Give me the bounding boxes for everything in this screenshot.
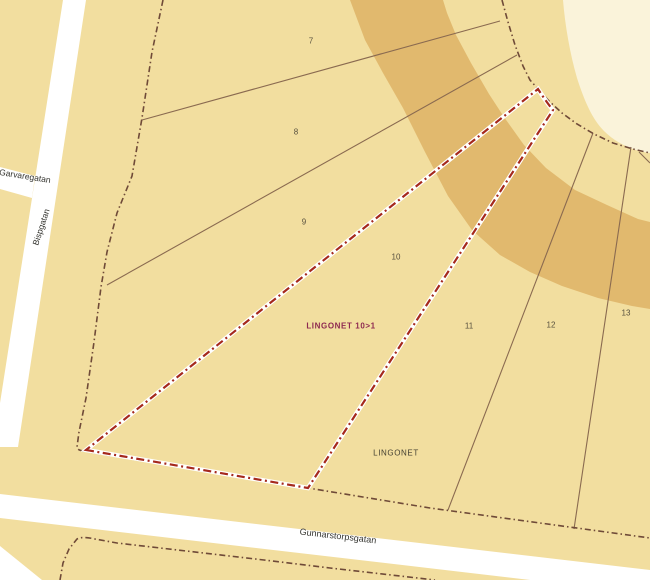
inner-circle-area <box>563 0 650 153</box>
block-boundaries <box>60 0 650 580</box>
map-canvas[interactable]: 7 8 9 10 11 12 13 LINGONET 10>1 LINGONET… <box>0 0 650 580</box>
street-bispgatan <box>0 0 86 447</box>
street-gunnarstorpsgatan <box>0 494 650 580</box>
street-garvaregatan <box>0 167 35 198</box>
parcel-line-13-14 <box>639 152 650 163</box>
street-corner-southwest <box>0 546 42 580</box>
map-layers <box>0 0 650 580</box>
